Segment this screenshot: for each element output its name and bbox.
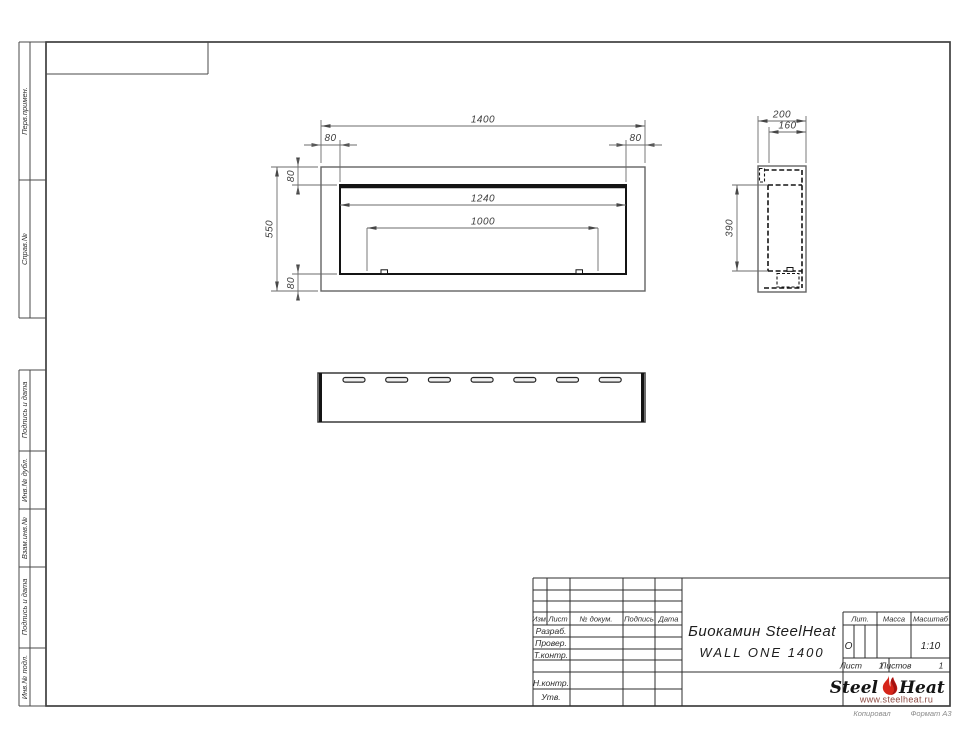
tb-role-checked: Провер. [535,638,567,648]
tb-scale-label: Масштаб [913,615,949,624]
tb-header-sign: Подпись [624,615,654,624]
vent-slot [557,378,579,383]
sheet-frame: Перв.примен. Справ.№ Подпись и дата Инв.… [19,42,950,706]
vent-slot [386,378,408,383]
top-left-reference-box [46,42,208,74]
sheet-footer: Копировал Формат А3 [853,709,952,718]
vent-slot [471,378,493,383]
tb-role-approved: Утв. [540,692,560,702]
dim-front-height: 550 [265,220,276,238]
dim-front-margin-top: 80 [286,170,297,182]
drawing-sheet: Перв.примен. Справ.№ Подпись и дата Инв.… [0,0,970,749]
dim-side-depth: 200 [772,110,791,121]
tb-lit-value: О [845,641,853,652]
margin-label-vzam-inv: Взам.инв.№ [20,517,29,559]
front-view-dimensions: 1400 80 80 550 80 80 1240 1000 [265,115,663,300]
dim-front-width: 1400 [471,115,495,126]
front-view [321,167,645,291]
format-label: Формат А3 [910,709,952,718]
side-burner-block [777,274,799,288]
margin-label-sprav-no: Справ.№ [20,233,29,265]
margin-label-podpis-data-1: Подпись и дата [20,382,29,439]
tb-role-developed: Разраб. [536,626,567,636]
side-view-dimensions: 200 160 390 [725,110,807,272]
tb-sheet-label: Лист [839,661,862,671]
burner-tab-right [576,270,583,274]
bottom-view [318,373,645,422]
vent-slot [428,378,450,383]
dim-front-margin-right: 80 [629,133,641,144]
margin-label-inv-dubl: Инв.№ дубл. [20,458,29,502]
drawing-canvas: Перв.примен. Справ.№ Подпись и дата Инв.… [0,0,970,749]
tb-sheets-label: Листов [880,661,913,671]
margin-label-podpis-data-2: Подпись и дата [20,579,29,636]
side-mount-bracket [760,169,765,183]
margin-label-inv-podl: Инв.№ подл. [20,655,29,699]
dim-front-margin-left: 80 [324,133,336,144]
logo-website: www.steelheat.ru [859,695,933,705]
copied-label: Копировал [853,709,891,718]
dim-front-inner-width: 1240 [471,194,495,205]
document-title-line2: WALL ONE 1400 [699,645,824,660]
margin-label-perv-primen: Перв.примен. [20,87,29,135]
document-title-line1: Биокамин SteelHeat [688,623,836,640]
dim-side-inner-depth: 160 [778,121,796,132]
dim-side-inner-height: 390 [725,219,736,237]
tb-role-ncontrol: Н.контр. [533,678,569,688]
tb-scale-value: 1:10 [921,641,941,652]
burner-tab-left [381,270,388,274]
tb-sheets-value: 1 [939,661,944,671]
vent-slot [343,378,365,383]
tb-mass-label: Масса [883,615,905,624]
steelheat-logo: Steel Heat www.steelheat.ru [830,674,945,704]
tb-header-izm: Изм. [532,615,548,624]
vent-slot [599,378,621,383]
tb-lit-label: Лит. [850,615,869,624]
vent-slot [514,378,536,383]
tb-header-doc: № докум. [579,615,612,624]
tb-role-tcontrol: Т.контр. [534,650,568,660]
dim-front-margin-bottom: 80 [286,277,297,289]
tb-header-list: Лист [547,615,567,624]
tb-header-date: Дата [658,615,679,624]
dim-front-burner-width: 1000 [471,217,495,228]
